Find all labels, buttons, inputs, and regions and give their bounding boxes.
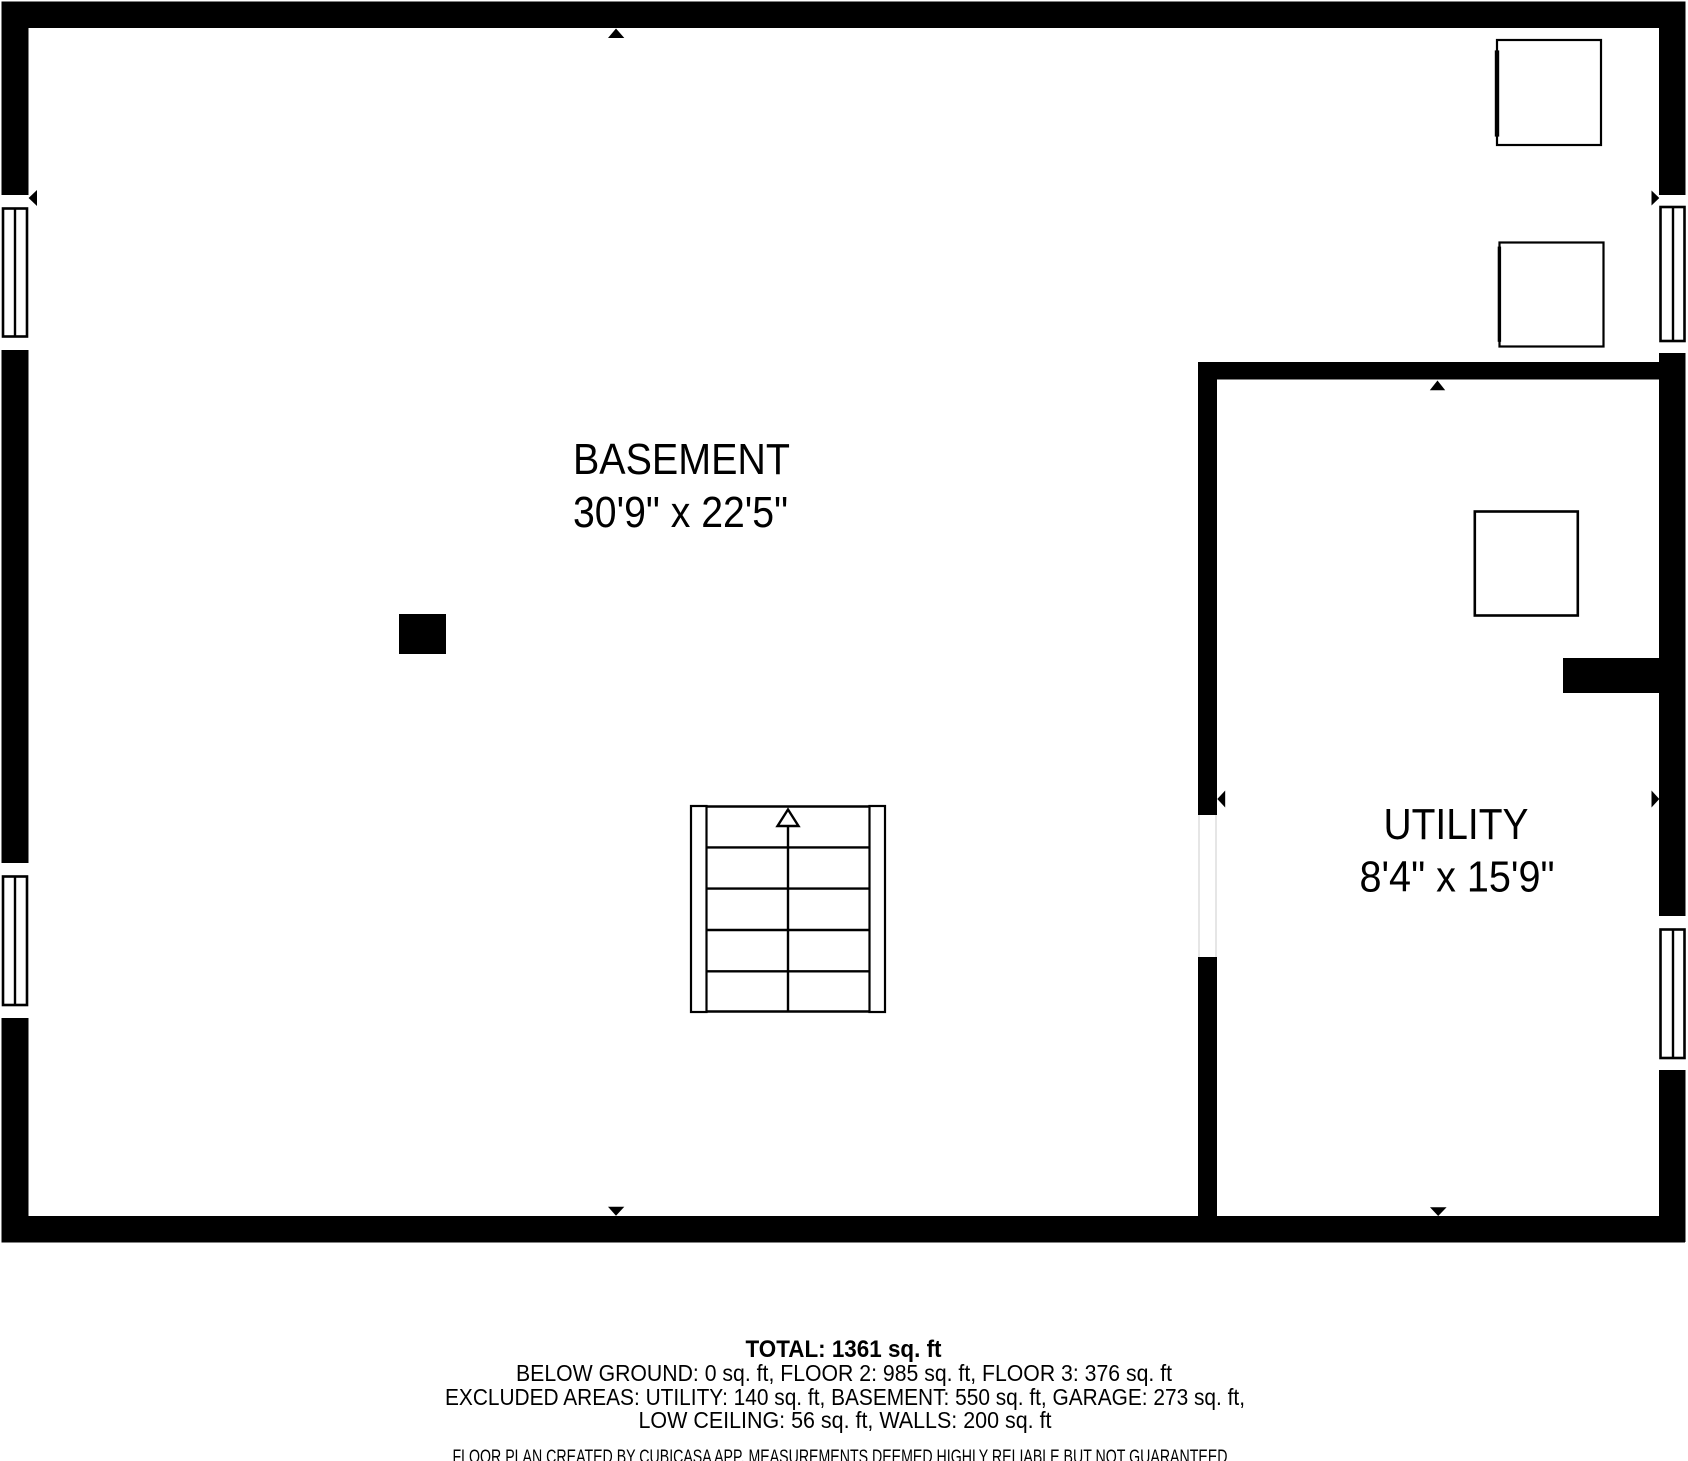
svg-text:8'4" x 15'9": 8'4" x 15'9" bbox=[1360, 853, 1555, 902]
svg-text:FLOOR PLAN CREATED BY CUBICASA: FLOOR PLAN CREATED BY CUBICASA APP. MEAS… bbox=[453, 1446, 1228, 1461]
svg-text:BASEMENT: BASEMENT bbox=[573, 435, 790, 484]
svg-text:UTILITY: UTILITY bbox=[1384, 800, 1529, 849]
svg-text:BELOW GROUND: 0 sq. ft, FLOOR: BELOW GROUND: 0 sq. ft, FLOOR 2: 985 sq.… bbox=[516, 1360, 1173, 1386]
svg-text:LOW CEILING: 56 sq. ft, WALLS:: LOW CEILING: 56 sq. ft, WALLS: 200 sq. f… bbox=[639, 1407, 1053, 1433]
svg-text:30'9" x 22'5": 30'9" x 22'5" bbox=[573, 488, 788, 537]
svg-text:TOTAL: 1361 sq. ft: TOTAL: 1361 sq. ft bbox=[746, 1336, 942, 1363]
